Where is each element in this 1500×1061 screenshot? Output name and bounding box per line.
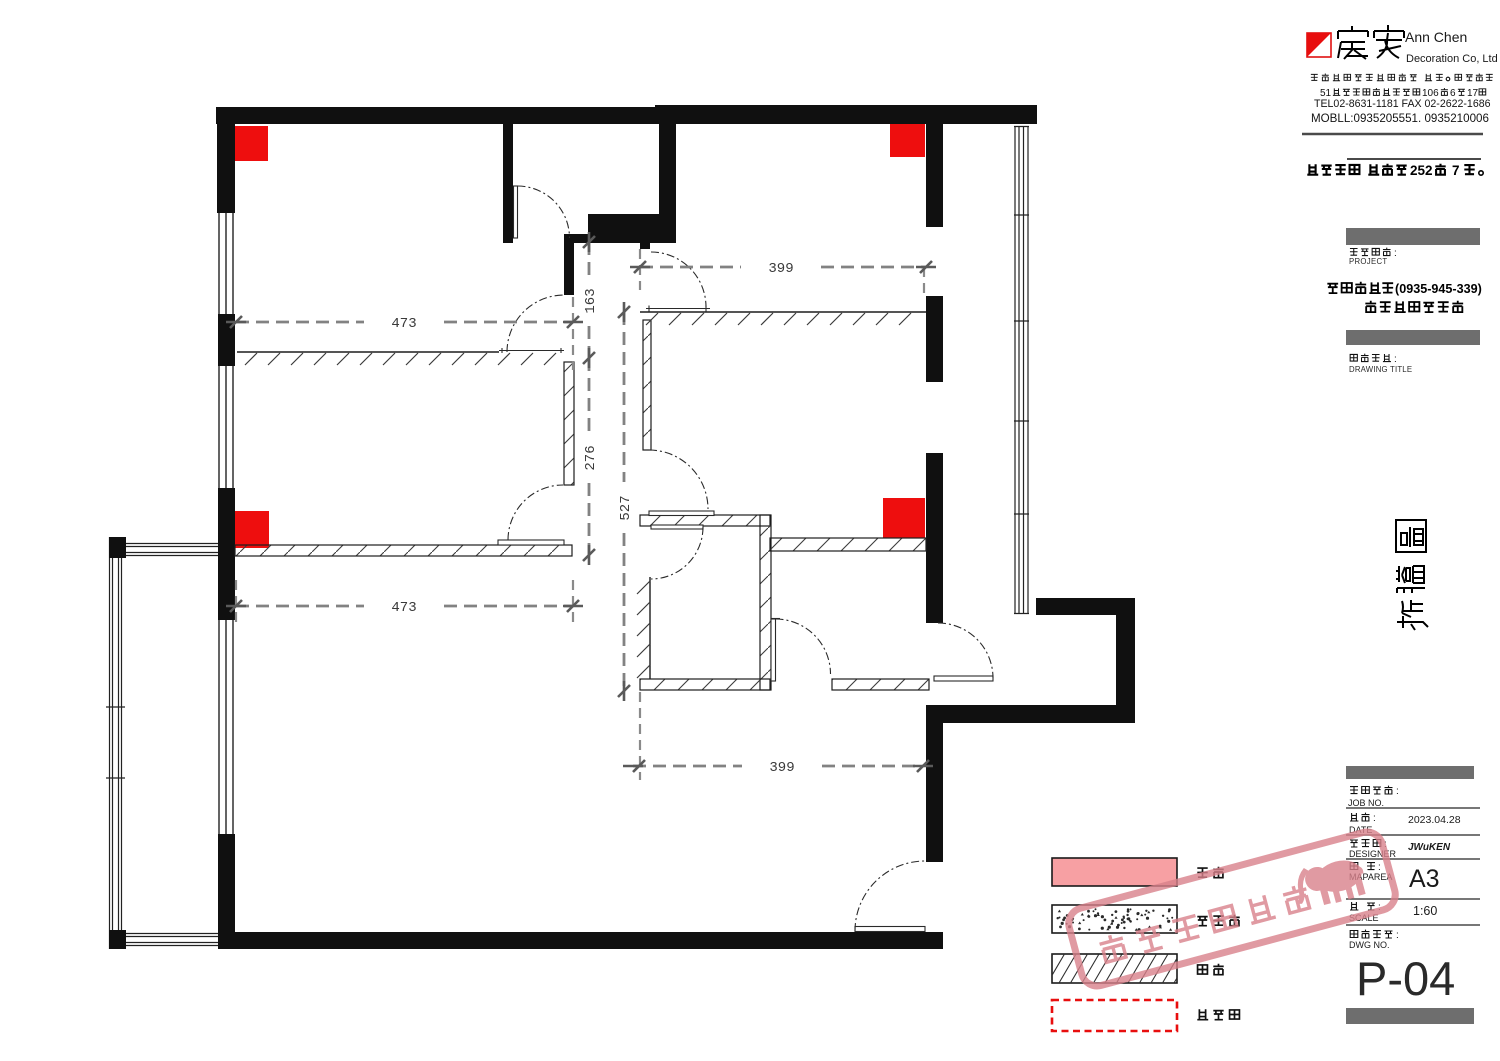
svg-text:399: 399 [768,261,793,277]
svg-text:1:60: 1:60 [1413,904,1437,918]
svg-text:7: 7 [1452,163,1460,178]
svg-text:252: 252 [1410,163,1433,178]
svg-text:Decoration Co, Ltd: Decoration Co, Ltd [1406,53,1498,65]
svg-text:DRAWING TITLE: DRAWING TITLE [1349,365,1412,374]
svg-text:163: 163 [583,288,599,313]
svg-text::: : [1394,354,1397,365]
svg-text:Ann Chen: Ann Chen [1405,29,1467,45]
svg-text:DWG NO.: DWG NO. [1349,940,1390,950]
svg-text:276: 276 [583,445,599,470]
svg-text::: : [1396,786,1399,797]
svg-text:473: 473 [391,600,416,616]
svg-text:P-04: P-04 [1356,952,1455,1005]
svg-text:JWuKEN: JWuKEN [1408,842,1451,853]
svg-text:527: 527 [618,495,634,520]
svg-text:TEL02-8631-1181 FAX 02-2622-16: TEL02-8631-1181 FAX 02-2622-1686 [1314,98,1491,110]
svg-text::: : [1373,813,1376,824]
svg-text:473: 473 [391,316,416,332]
svg-text:2023.04.28: 2023.04.28 [1408,814,1461,826]
svg-text:PROJECT: PROJECT [1349,257,1388,266]
svg-text::: : [1394,248,1397,259]
svg-text:JOB NO.: JOB NO. [1348,798,1384,808]
svg-text:399: 399 [769,760,794,776]
svg-text:A3: A3 [1409,865,1440,893]
svg-text::: : [1396,930,1399,941]
svg-text:MOBLL:0935205551. 0935210006: MOBLL:0935205551. 0935210006 [1311,112,1489,125]
svg-text:(0935-945-339): (0935-945-339) [1395,282,1482,296]
